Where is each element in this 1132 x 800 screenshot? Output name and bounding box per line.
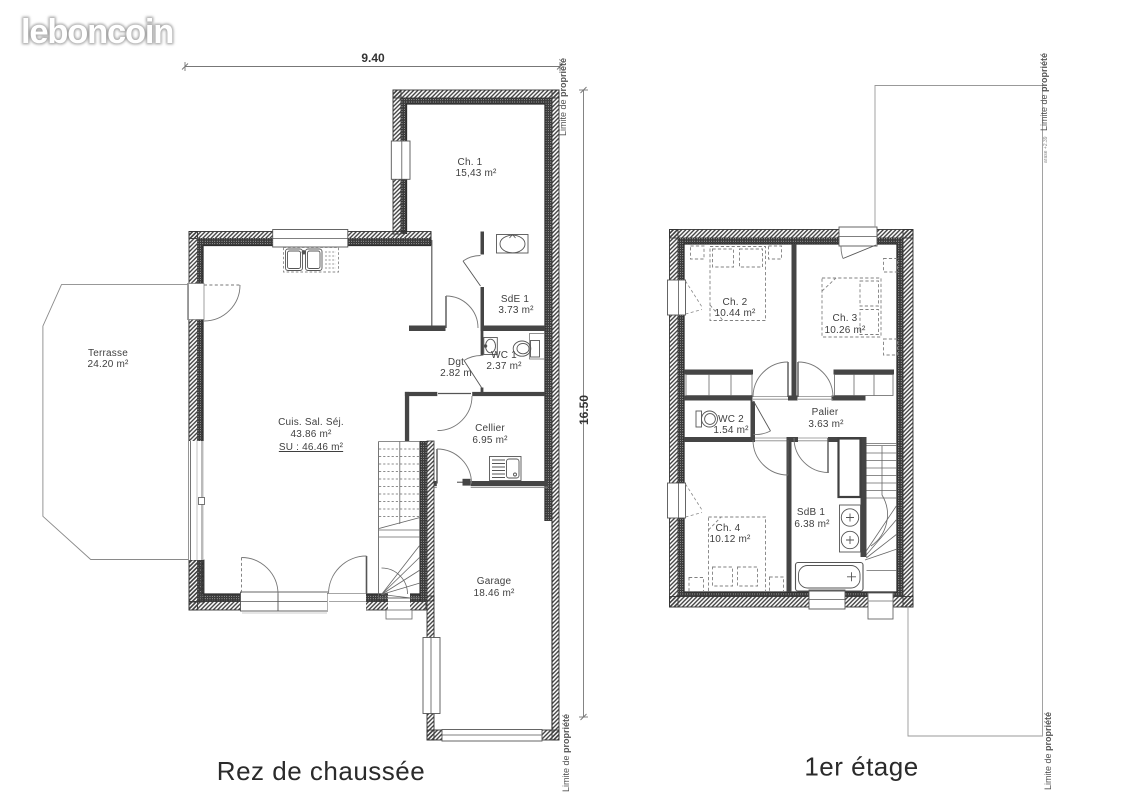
svg-text:leboncoin: leboncoin: [21, 13, 173, 51]
svg-text:Limite de propriété: Limite de propriété: [561, 714, 571, 792]
svg-text:Terrasse: Terrasse: [88, 348, 128, 359]
svg-text:3.73 m²: 3.73 m²: [498, 305, 534, 316]
svg-text:Rez de chaussée: Rez de chaussée: [217, 756, 425, 786]
svg-text:Limite de propriété: Limite de propriété: [1039, 53, 1049, 131]
svg-text:18.46 m²: 18.46 m²: [473, 588, 515, 599]
svg-text:Palier: Palier: [812, 407, 839, 418]
svg-text:SdB 1: SdB 1: [797, 507, 825, 518]
svg-text:arase +2.39: arase +2.39: [1043, 136, 1049, 163]
svg-text:2.37 m²: 2.37 m²: [486, 361, 522, 372]
svg-text:15,43 m²: 15,43 m²: [455, 168, 497, 179]
svg-text:WC 1: WC 1: [491, 350, 517, 361]
svg-text:16.50: 16.50: [577, 395, 591, 425]
svg-text:6.95 m²: 6.95 m²: [472, 435, 508, 446]
svg-text:10.12 m²: 10.12 m²: [709, 534, 751, 545]
svg-text:Ch. 3: Ch. 3: [833, 313, 858, 324]
svg-text:Cellier: Cellier: [475, 423, 505, 434]
svg-text:Garage: Garage: [477, 576, 512, 587]
svg-text:Limite de propriété: Limite de propriété: [558, 58, 568, 136]
svg-text:9.40: 9.40: [361, 51, 385, 65]
svg-text:24.20 m²: 24.20 m²: [87, 359, 129, 370]
svg-text:Ch. 4: Ch. 4: [716, 523, 741, 534]
svg-text:WC 2: WC 2: [718, 414, 744, 425]
svg-text:6.38 m²: 6.38 m²: [794, 519, 830, 530]
svg-text:Ch. 2: Ch. 2: [723, 297, 748, 308]
svg-text:3.63 m²: 3.63 m²: [808, 419, 844, 430]
svg-text:Cuis. Sal. Séj.: Cuis. Sal. Séj.: [278, 417, 344, 428]
svg-text:43.86 m²: 43.86 m²: [290, 429, 332, 440]
svg-text:2.82 m: 2.82 m: [440, 368, 472, 379]
svg-text:SU : 46.46 m²: SU : 46.46 m²: [279, 442, 344, 453]
svg-text:Ch. 1: Ch. 1: [458, 157, 483, 168]
svg-text:1.54 m²: 1.54 m²: [713, 425, 749, 436]
svg-text:Limite de propriété: Limite de propriété: [1043, 712, 1053, 790]
svg-text:1er étage: 1er étage: [804, 752, 918, 782]
svg-text:Dgt: Dgt: [448, 357, 464, 368]
svg-text:SdE 1: SdE 1: [501, 294, 529, 305]
